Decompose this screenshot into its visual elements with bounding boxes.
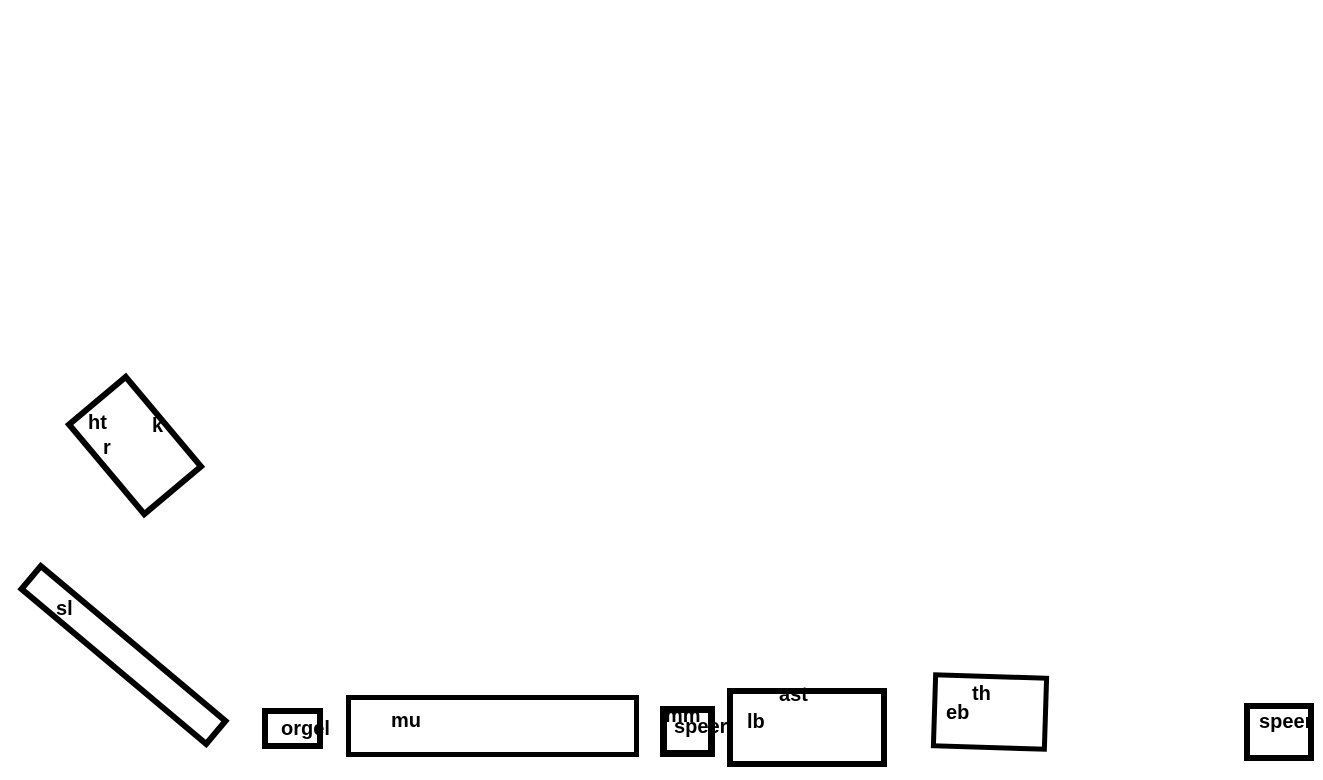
slanted-bar [17, 561, 229, 747]
th-eb-box [931, 672, 1049, 752]
mu-box [346, 695, 639, 757]
lb-box [727, 688, 887, 767]
drawing-canvas: ht k r sl orgel mu mm speer ast lb th eb… [0, 0, 1323, 780]
orgel-box [262, 708, 323, 749]
mm-box [660, 706, 715, 757]
speer-box [1244, 703, 1314, 761]
rotated-box-top-left [64, 372, 204, 518]
